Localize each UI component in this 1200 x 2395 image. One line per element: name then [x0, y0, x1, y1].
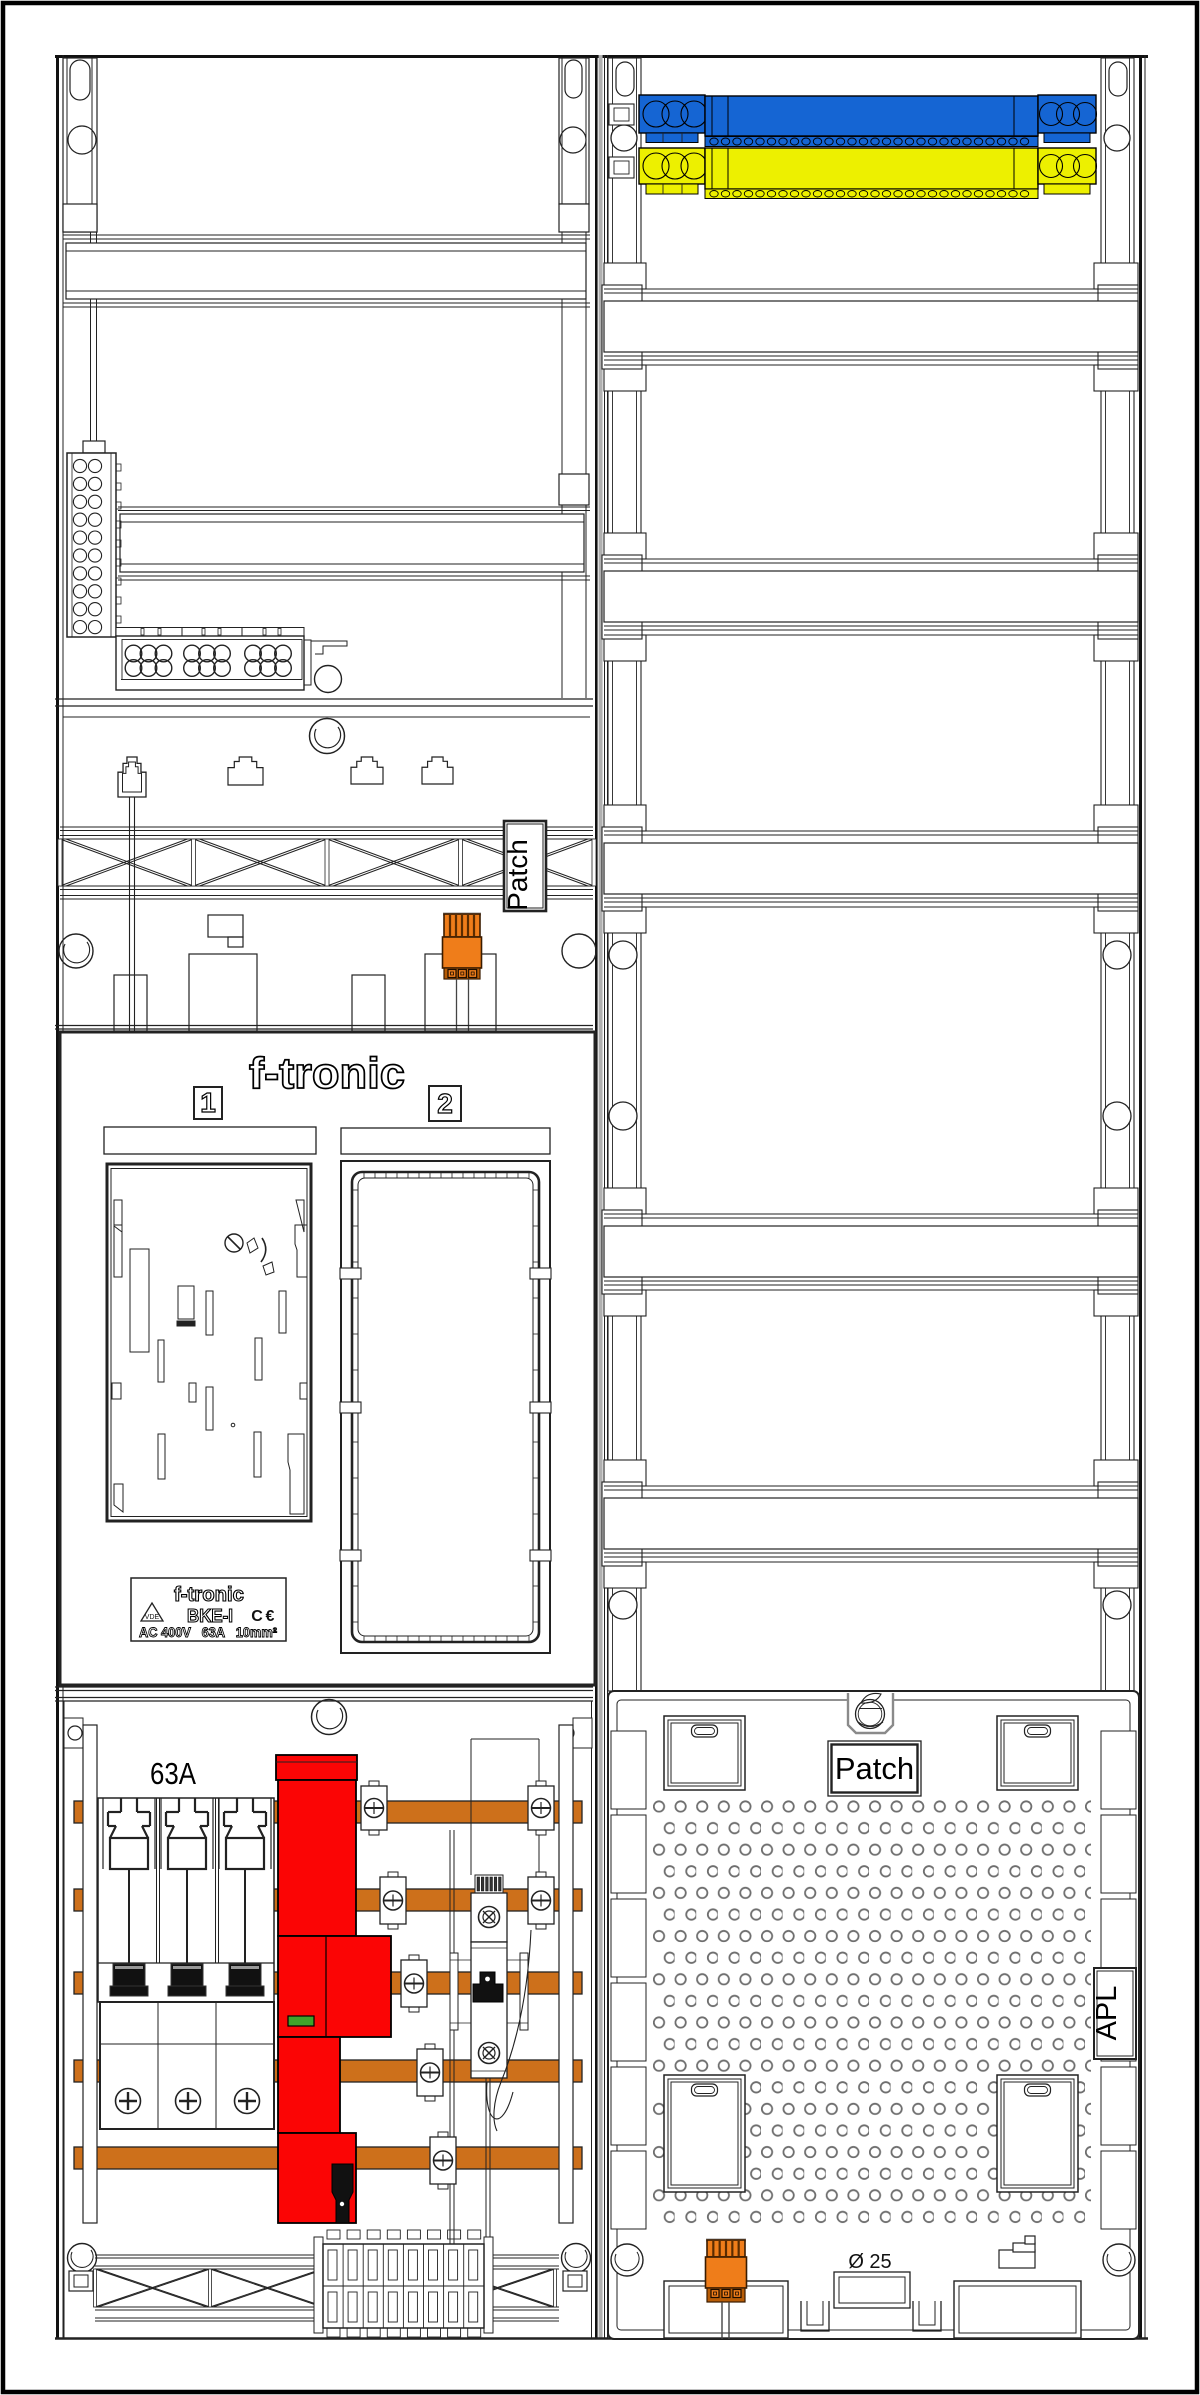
svg-text:Ø 25: Ø 25 [848, 2251, 891, 2273]
svg-text:€: € [266, 1608, 275, 1625]
svg-text:f-tronic: f-tronic [174, 1584, 244, 1606]
svg-text:2: 2 [437, 1088, 453, 1119]
svg-text:BKE-I: BKE-I [187, 1606, 233, 1626]
svg-text:f-tronic: f-tronic [249, 1049, 405, 1098]
svg-text:1: 1 [200, 1087, 216, 1118]
svg-text:APL: APL [1091, 1986, 1123, 2041]
svg-text:Patch: Patch [502, 839, 533, 911]
svg-text:Patch: Patch [835, 1751, 914, 1786]
svg-text:AC 400V 63A 10mm²: AC 400V 63A 10mm² [139, 1625, 277, 1640]
svg-text:VDE: VDE [145, 1614, 160, 1621]
svg-text:C: C [251, 1608, 263, 1625]
svg-text:63A: 63A [150, 1756, 196, 1791]
